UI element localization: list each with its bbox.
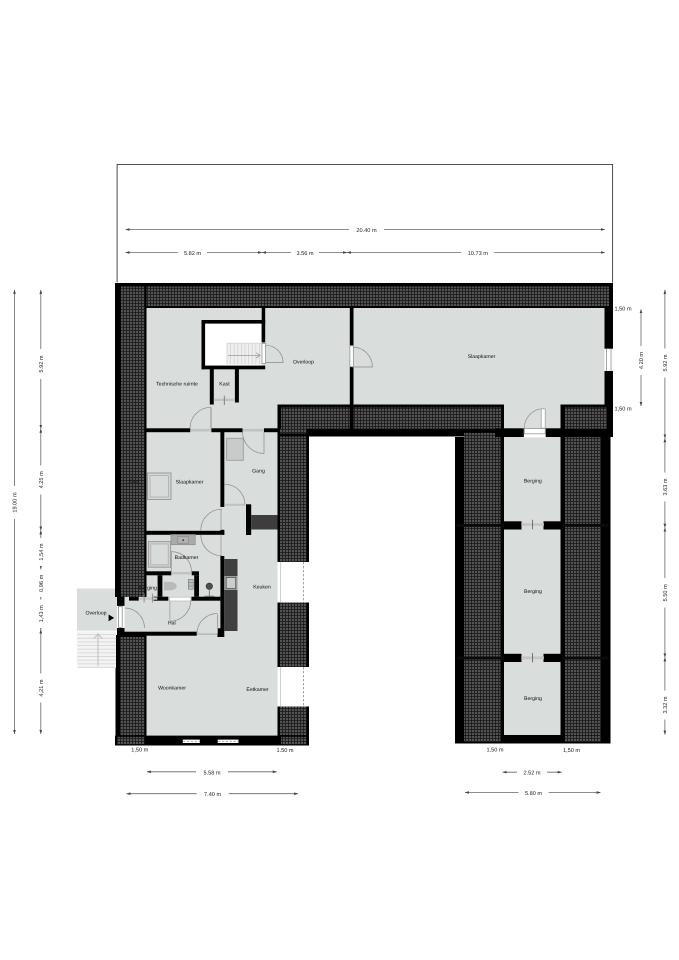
svg-text:Berging: Berging [524, 589, 542, 595]
svg-text:Berging: Berging [524, 479, 542, 485]
svg-text:5.50 m: 5.50 m [663, 584, 669, 601]
svg-text:Badkamer: Badkamer [175, 555, 199, 561]
svg-text:7.40 m: 7.40 m [204, 792, 221, 798]
svg-text:5.82 m: 5.82 m [184, 251, 201, 257]
svg-text:Kast: Kast [219, 382, 230, 388]
svg-text:5.58 m: 5.58 m [203, 770, 220, 776]
svg-text:1,50 m: 1,50 m [131, 748, 148, 754]
svg-text:2.52 m: 2.52 m [523, 771, 540, 777]
svg-text:4.20 m: 4.20 m [639, 352, 645, 369]
svg-text:19.00 m: 19.00 m [13, 492, 19, 513]
svg-text:Overloop: Overloop [293, 360, 314, 366]
svg-text:4,21 m: 4,21 m [39, 679, 45, 696]
svg-text:3.32 m: 3.32 m [663, 696, 669, 713]
svg-text:Kast: Kast [129, 479, 140, 485]
svg-text:5.80 m: 5.80 m [525, 791, 542, 797]
svg-text:Berging: Berging [139, 586, 157, 592]
svg-text:3.56 m: 3.56 m [296, 251, 313, 257]
svg-text:Overloop: Overloop [85, 611, 106, 617]
svg-text:1,50 m: 1,50 m [486, 748, 503, 754]
svg-text:0,96 m: 0,96 m [39, 574, 45, 591]
svg-text:1,54 m: 1,54 m [39, 543, 45, 560]
svg-text:Slaapkamer: Slaapkamer [468, 354, 496, 360]
svg-text:Keuken: Keuken [253, 585, 271, 591]
svg-text:1,43 m: 1,43 m [39, 605, 45, 622]
svg-text:Woonkamer: Woonkamer [158, 686, 186, 692]
svg-text:4.25 m: 4.25 m [39, 471, 45, 488]
svg-text:1,50 m: 1,50 m [615, 307, 632, 313]
svg-text:Berging: Berging [524, 696, 542, 702]
svg-text:20.40 m: 20.40 m [356, 228, 377, 234]
svg-text:Technische ruimte: Technische ruimte [156, 382, 198, 388]
svg-text:1,50 m: 1,50 m [563, 748, 580, 754]
svg-text:Eetkamer: Eetkamer [246, 687, 268, 693]
svg-text:Hal: Hal [168, 621, 176, 627]
svg-text:1.50 m: 1.50 m [276, 748, 293, 754]
svg-text:Gang: Gang [252, 469, 265, 475]
svg-text:1,50 m: 1,50 m [615, 407, 632, 413]
svg-text:10.73 m: 10.73 m [468, 251, 489, 257]
svg-text:5.92 m: 5.92 m [39, 355, 45, 372]
svg-text:3.63 m: 3.63 m [663, 478, 669, 495]
svg-text:5.92 m: 5.92 m [663, 354, 669, 371]
svg-text:Slaapkamer: Slaapkamer [176, 480, 204, 486]
